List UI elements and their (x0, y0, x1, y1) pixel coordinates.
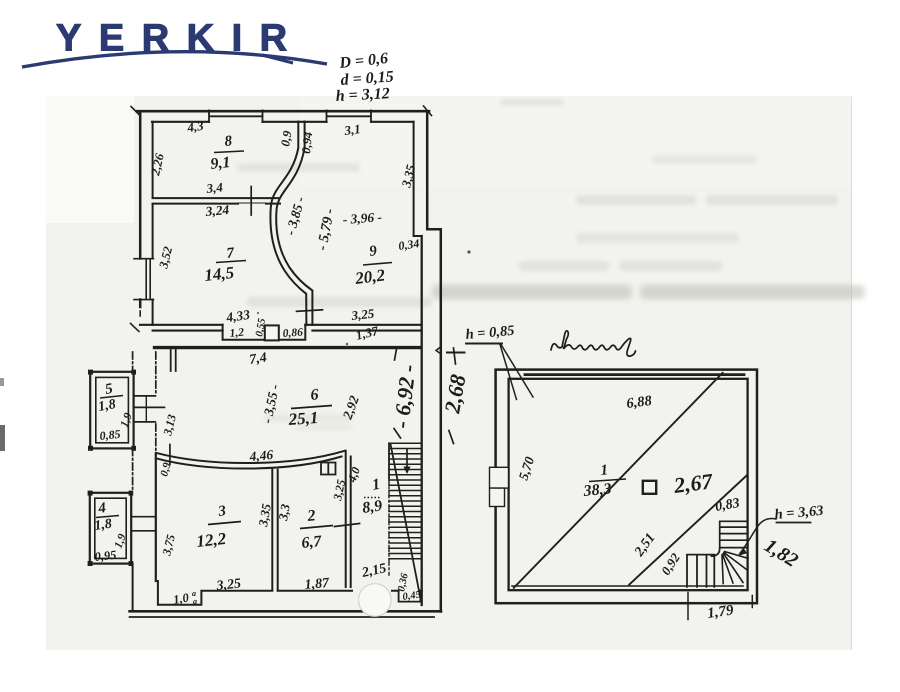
svg-text:3,24: 3,24 (204, 202, 230, 219)
svg-text:3,25: 3,25 (350, 306, 376, 323)
svg-text:25,1: 25,1 (287, 408, 319, 429)
svg-text:20,2: 20,2 (353, 265, 386, 288)
svg-text:14,5: 14,5 (203, 263, 235, 285)
svg-text:YERKIR: YERKIR (56, 18, 305, 60)
svg-text:3,25: 3,25 (215, 576, 242, 594)
svg-text:1,2: 1,2 (229, 327, 245, 340)
svg-text:0,94: 0,94 (299, 131, 315, 154)
svg-text:9,1: 9,1 (210, 154, 232, 173)
svg-text:h = 3,12: h = 3,12 (335, 85, 390, 105)
svg-text:12,2: 12,2 (195, 529, 227, 551)
svg-text:3,1: 3,1 (343, 121, 362, 138)
svg-text:0,34: 0,34 (397, 236, 420, 253)
svg-text:1,0: 1,0 (172, 590, 191, 607)
svg-text:0,95: 0,95 (94, 548, 117, 564)
svg-text:2: 2 (306, 507, 317, 525)
svg-text:6,7: 6,7 (301, 533, 324, 552)
svg-text:4,46: 4,46 (248, 447, 274, 464)
svg-text:0,86: 0,86 (282, 327, 303, 340)
svg-text:38,3: 38,3 (582, 481, 612, 500)
svg-text:8,9: 8,9 (361, 497, 383, 517)
svg-text:3,3: 3,3 (275, 502, 293, 522)
svg-text:3,4: 3,4 (205, 179, 224, 196)
svg-text:0,85: 0,85 (99, 427, 121, 443)
svg-text:- 3,96 -: - 3,96 - (342, 209, 383, 227)
svg-text:7,4: 7,4 (248, 350, 268, 368)
svg-text:0,9: 0,9 (278, 129, 295, 148)
svg-text:2,67: 2,67 (672, 468, 715, 498)
svg-text:4,3: 4,3 (185, 118, 205, 135)
svg-text:1,87: 1,87 (304, 576, 331, 593)
svg-text:a: a (193, 597, 197, 606)
svg-text:6,88: 6,88 (626, 393, 654, 412)
svg-text:1,8: 1,8 (97, 397, 117, 415)
svg-text:1,8: 1,8 (93, 517, 112, 534)
